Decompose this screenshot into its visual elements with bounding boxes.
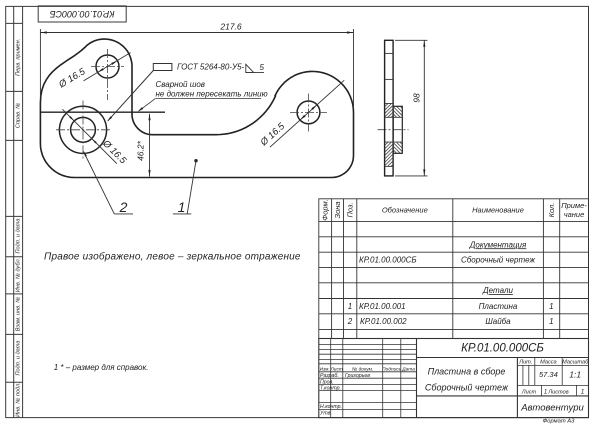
svg-text:Сварной шов: Сварной шов: [156, 80, 205, 89]
svg-text:1: 1: [549, 302, 553, 311]
svg-text:Разраб.: Разраб.: [320, 373, 339, 379]
svg-text:№ докум.: № докум.: [352, 366, 373, 372]
svg-text:Сборочный чертеж: Сборочный чертеж: [461, 256, 535, 265]
svg-text:Изм.: Изм.: [320, 366, 330, 372]
svg-text:Пластина: Пластина: [479, 302, 518, 311]
svg-text:Листов: Листов: [547, 390, 568, 396]
svg-text:Пластина в сборе: Пластина в сборе: [428, 367, 506, 377]
svg-text:Инв. № дубл.: Инв. № дубл.: [16, 258, 22, 292]
svg-text:1:1: 1:1: [569, 370, 581, 380]
svg-text:1: 1: [178, 199, 186, 215]
svg-text:Формат А3: Формат А3: [543, 419, 575, 424]
svg-text:2: 2: [347, 317, 353, 326]
svg-text:1: 1: [581, 389, 585, 396]
svg-text:Детали: Детали: [482, 286, 513, 295]
svg-text:Лист: Лист: [330, 366, 343, 372]
svg-text:КР.01.00.001: КР.01.00.001: [359, 302, 406, 311]
svg-text:Подпись: Подпись: [382, 366, 402, 372]
svg-text:217.6: 217.6: [219, 22, 242, 32]
svg-text:Кол.: Кол.: [547, 203, 556, 218]
svg-text:Справ. №: Справ. №: [16, 103, 22, 128]
svg-text:1: 1: [549, 317, 553, 326]
svg-text:Т.контр.: Т.контр.: [320, 386, 341, 392]
svg-text:Утв.: Утв.: [320, 411, 332, 417]
svg-text:Обозначение: Обозначение: [382, 206, 428, 215]
svg-text:5: 5: [260, 63, 265, 72]
svg-text:КР.01.00.000СБ: КР.01.00.000СБ: [461, 343, 544, 355]
svg-text:Сборочный чертеж: Сборочный чертеж: [425, 383, 509, 393]
svg-text:Инв. № подл.: Инв. № подл.: [16, 382, 22, 417]
svg-text:ГОСТ 5264-80-У5-: ГОСТ 5264-80-У5-: [177, 62, 245, 71]
svg-text:КР.01.00.000СБ: КР.01.00.000СБ: [50, 9, 115, 19]
svg-text:1: 1: [544, 390, 547, 396]
svg-text:КР.01.00.000СБ: КР.01.00.000СБ: [359, 256, 417, 265]
svg-text:Автовентури: Автовентури: [520, 403, 584, 414]
svg-text:Лист: Лист: [521, 390, 537, 396]
svg-text:57.34: 57.34: [539, 370, 558, 379]
svg-text:Наименование: Наименование: [472, 206, 524, 215]
svg-text:Дата: Дата: [401, 366, 415, 372]
svg-text:Пров.: Пров.: [320, 379, 334, 385]
svg-text:КР.01.00.002: КР.01.00.002: [360, 317, 407, 326]
svg-text:2: 2: [119, 199, 128, 215]
svg-text:чание: чание: [564, 210, 585, 219]
svg-text:1: 1: [348, 302, 352, 311]
svg-text:Масштаб: Масштаб: [562, 359, 589, 365]
svg-text:Зона: Зона: [333, 201, 342, 218]
svg-text:Поз.: Поз.: [346, 202, 355, 217]
svg-text:Лит.: Лит.: [518, 359, 532, 365]
svg-text:1 * – размер для справок.: 1 * – размер для справок.: [54, 363, 149, 372]
svg-text:Документация: Документация: [469, 240, 527, 249]
svg-text:Шайба: Шайба: [485, 317, 511, 326]
svg-text:Подп. и дата: Подп. и дата: [16, 340, 22, 375]
svg-text:Форм.: Форм.: [321, 199, 330, 220]
svg-text:46.2*: 46.2*: [136, 140, 146, 161]
svg-text:Григорьев: Григорьев: [345, 373, 370, 379]
svg-text:Н.контр.: Н.контр.: [320, 404, 342, 410]
svg-text:Правое изображено, левое – зер: Правое изображено, левое – зеркальное от…: [44, 251, 301, 263]
svg-text:Перв. примен.: Перв. примен.: [16, 39, 22, 76]
svg-text:Приме-: Приме-: [561, 201, 587, 210]
svg-text:Масса: Масса: [540, 359, 557, 365]
svg-text:Подп. и дата: Подп. и дата: [16, 218, 22, 253]
svg-text:Взам. инв. №: Взам. инв. №: [16, 297, 22, 332]
svg-text:98: 98: [412, 93, 422, 103]
svg-text:не должен пересекать линию: не должен пересекать линию: [156, 90, 268, 99]
